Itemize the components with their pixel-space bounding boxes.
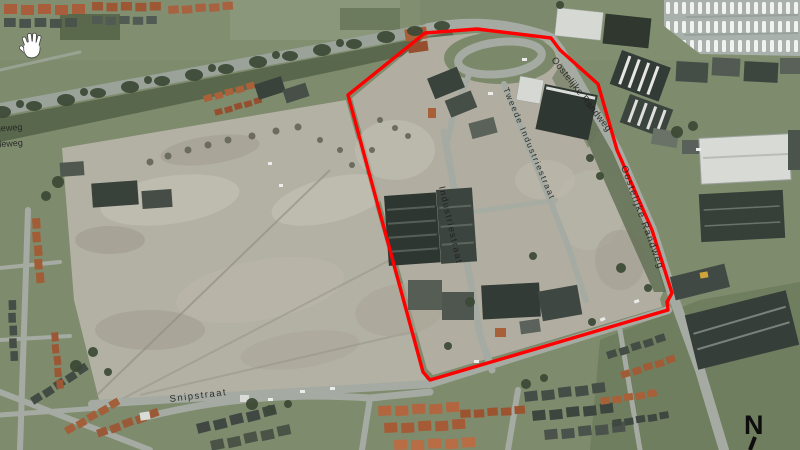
white-roof-building bbox=[699, 134, 791, 185]
map-viewport[interactable]: Oostelijke Randweg Oostelijke Randweg Tw… bbox=[0, 0, 800, 450]
aerial-photo-canvas: Oostelijke Randweg Oostelijke Randweg Tw… bbox=[0, 0, 800, 450]
dark-roof-building bbox=[699, 190, 785, 242]
north-letter: N bbox=[744, 410, 764, 440]
